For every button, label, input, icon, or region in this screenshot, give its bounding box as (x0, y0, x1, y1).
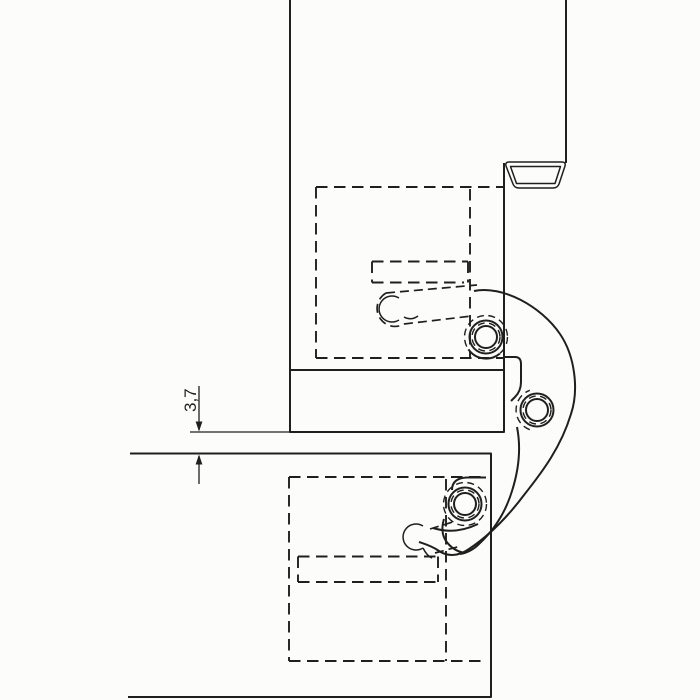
knuckle-pin-bore (475, 326, 497, 348)
knuckle-thread-line (523, 396, 551, 424)
dimension-arrow-up (196, 455, 203, 465)
dimension-label: 3,7 (181, 388, 200, 412)
dimension-arrow-down (196, 422, 203, 432)
door-hinge-pocket-hidden (289, 477, 486, 661)
gasket-inner-contour (511, 167, 561, 184)
knuckle-thread-line (451, 490, 479, 518)
lower-pivot-pin (403, 524, 432, 558)
dimension-gap: 3,7 (181, 386, 290, 484)
door-pocket-outline (289, 477, 486, 661)
seal-gasket (506, 162, 565, 188)
knuckle-thread-line (472, 323, 500, 351)
drawing-svg: 3,7 (0, 0, 700, 700)
door-pocket-recess (298, 557, 438, 583)
hinge-body-outer-curve (419, 290, 575, 555)
hinge-knuckle-middle (516, 390, 553, 429)
frame-outline (290, 0, 504, 432)
hinge-body (419, 290, 575, 555)
hinge-knuckle-bottom (449, 488, 482, 521)
knuckle-pin-bore (454, 493, 476, 515)
door-frame-profile (290, 0, 566, 432)
hinge-body-step (504, 357, 521, 401)
lower-knuckle-dashed-ring (444, 483, 487, 526)
hinge-knuckle-top (470, 321, 503, 354)
knuckle-pin-bore (526, 399, 548, 421)
upper-pivot-pin (379, 296, 418, 322)
frame-pocket-recess (372, 262, 468, 283)
hinge-section-drawing: 3,7 (0, 0, 700, 700)
upper-arm-outline (377, 285, 477, 326)
